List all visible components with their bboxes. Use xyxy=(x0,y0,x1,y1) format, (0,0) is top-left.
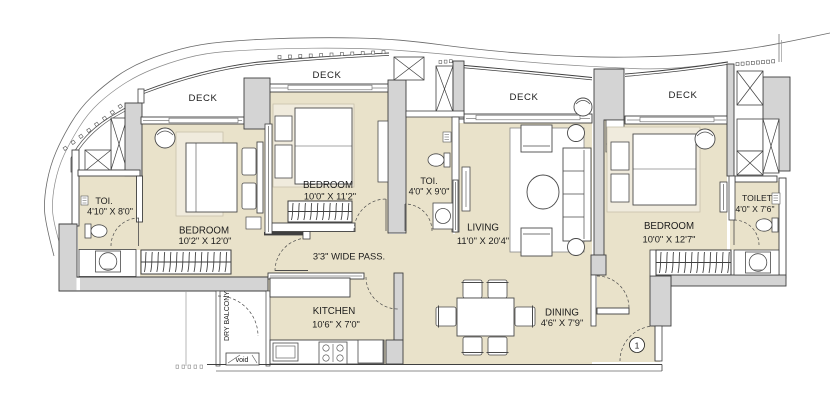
svg-text:10'2" X 12'0": 10'2" X 12'0" xyxy=(179,235,232,246)
svg-text:void: void xyxy=(236,357,249,364)
svg-text:10'0" X 12'7": 10'0" X 12'7" xyxy=(643,234,696,245)
svg-text:DECK: DECK xyxy=(668,90,697,101)
svg-text:4'0" X 9'0": 4'0" X 9'0" xyxy=(409,187,450,197)
svg-text:DECK: DECK xyxy=(509,92,538,103)
svg-text:10'6" X 7'0": 10'6" X 7'0" xyxy=(312,319,360,330)
svg-text:11'0" X 20'4": 11'0" X 20'4" xyxy=(457,235,509,246)
svg-text:KITCHEN: KITCHEN xyxy=(313,306,356,317)
svg-text:DECK: DECK xyxy=(312,70,341,81)
svg-text:1: 1 xyxy=(635,341,640,351)
svg-text:4'6" X 7'9": 4'6" X 7'9" xyxy=(541,317,584,328)
svg-text:DRY BALCONY: DRY BALCONY xyxy=(224,291,231,341)
svg-text:3'3" WIDE PASS.: 3'3" WIDE PASS. xyxy=(313,251,385,262)
svg-text:10'0" X 11'2": 10'0" X 11'2" xyxy=(304,191,356,202)
svg-text:BEDROOM: BEDROOM xyxy=(303,180,353,191)
svg-text:4'0" X 7'6": 4'0" X 7'6" xyxy=(735,204,774,214)
svg-text:LIVING: LIVING xyxy=(467,223,499,234)
svg-text:4'10" X 8'0": 4'10" X 8'0" xyxy=(87,207,133,217)
svg-text:DECK: DECK xyxy=(188,93,217,104)
svg-text:BEDROOM: BEDROOM xyxy=(644,221,694,232)
svg-text:TOILET: TOILET xyxy=(742,193,773,203)
svg-text:TOI.: TOI. xyxy=(420,176,437,186)
svg-text:TOI.: TOI. xyxy=(95,196,112,206)
